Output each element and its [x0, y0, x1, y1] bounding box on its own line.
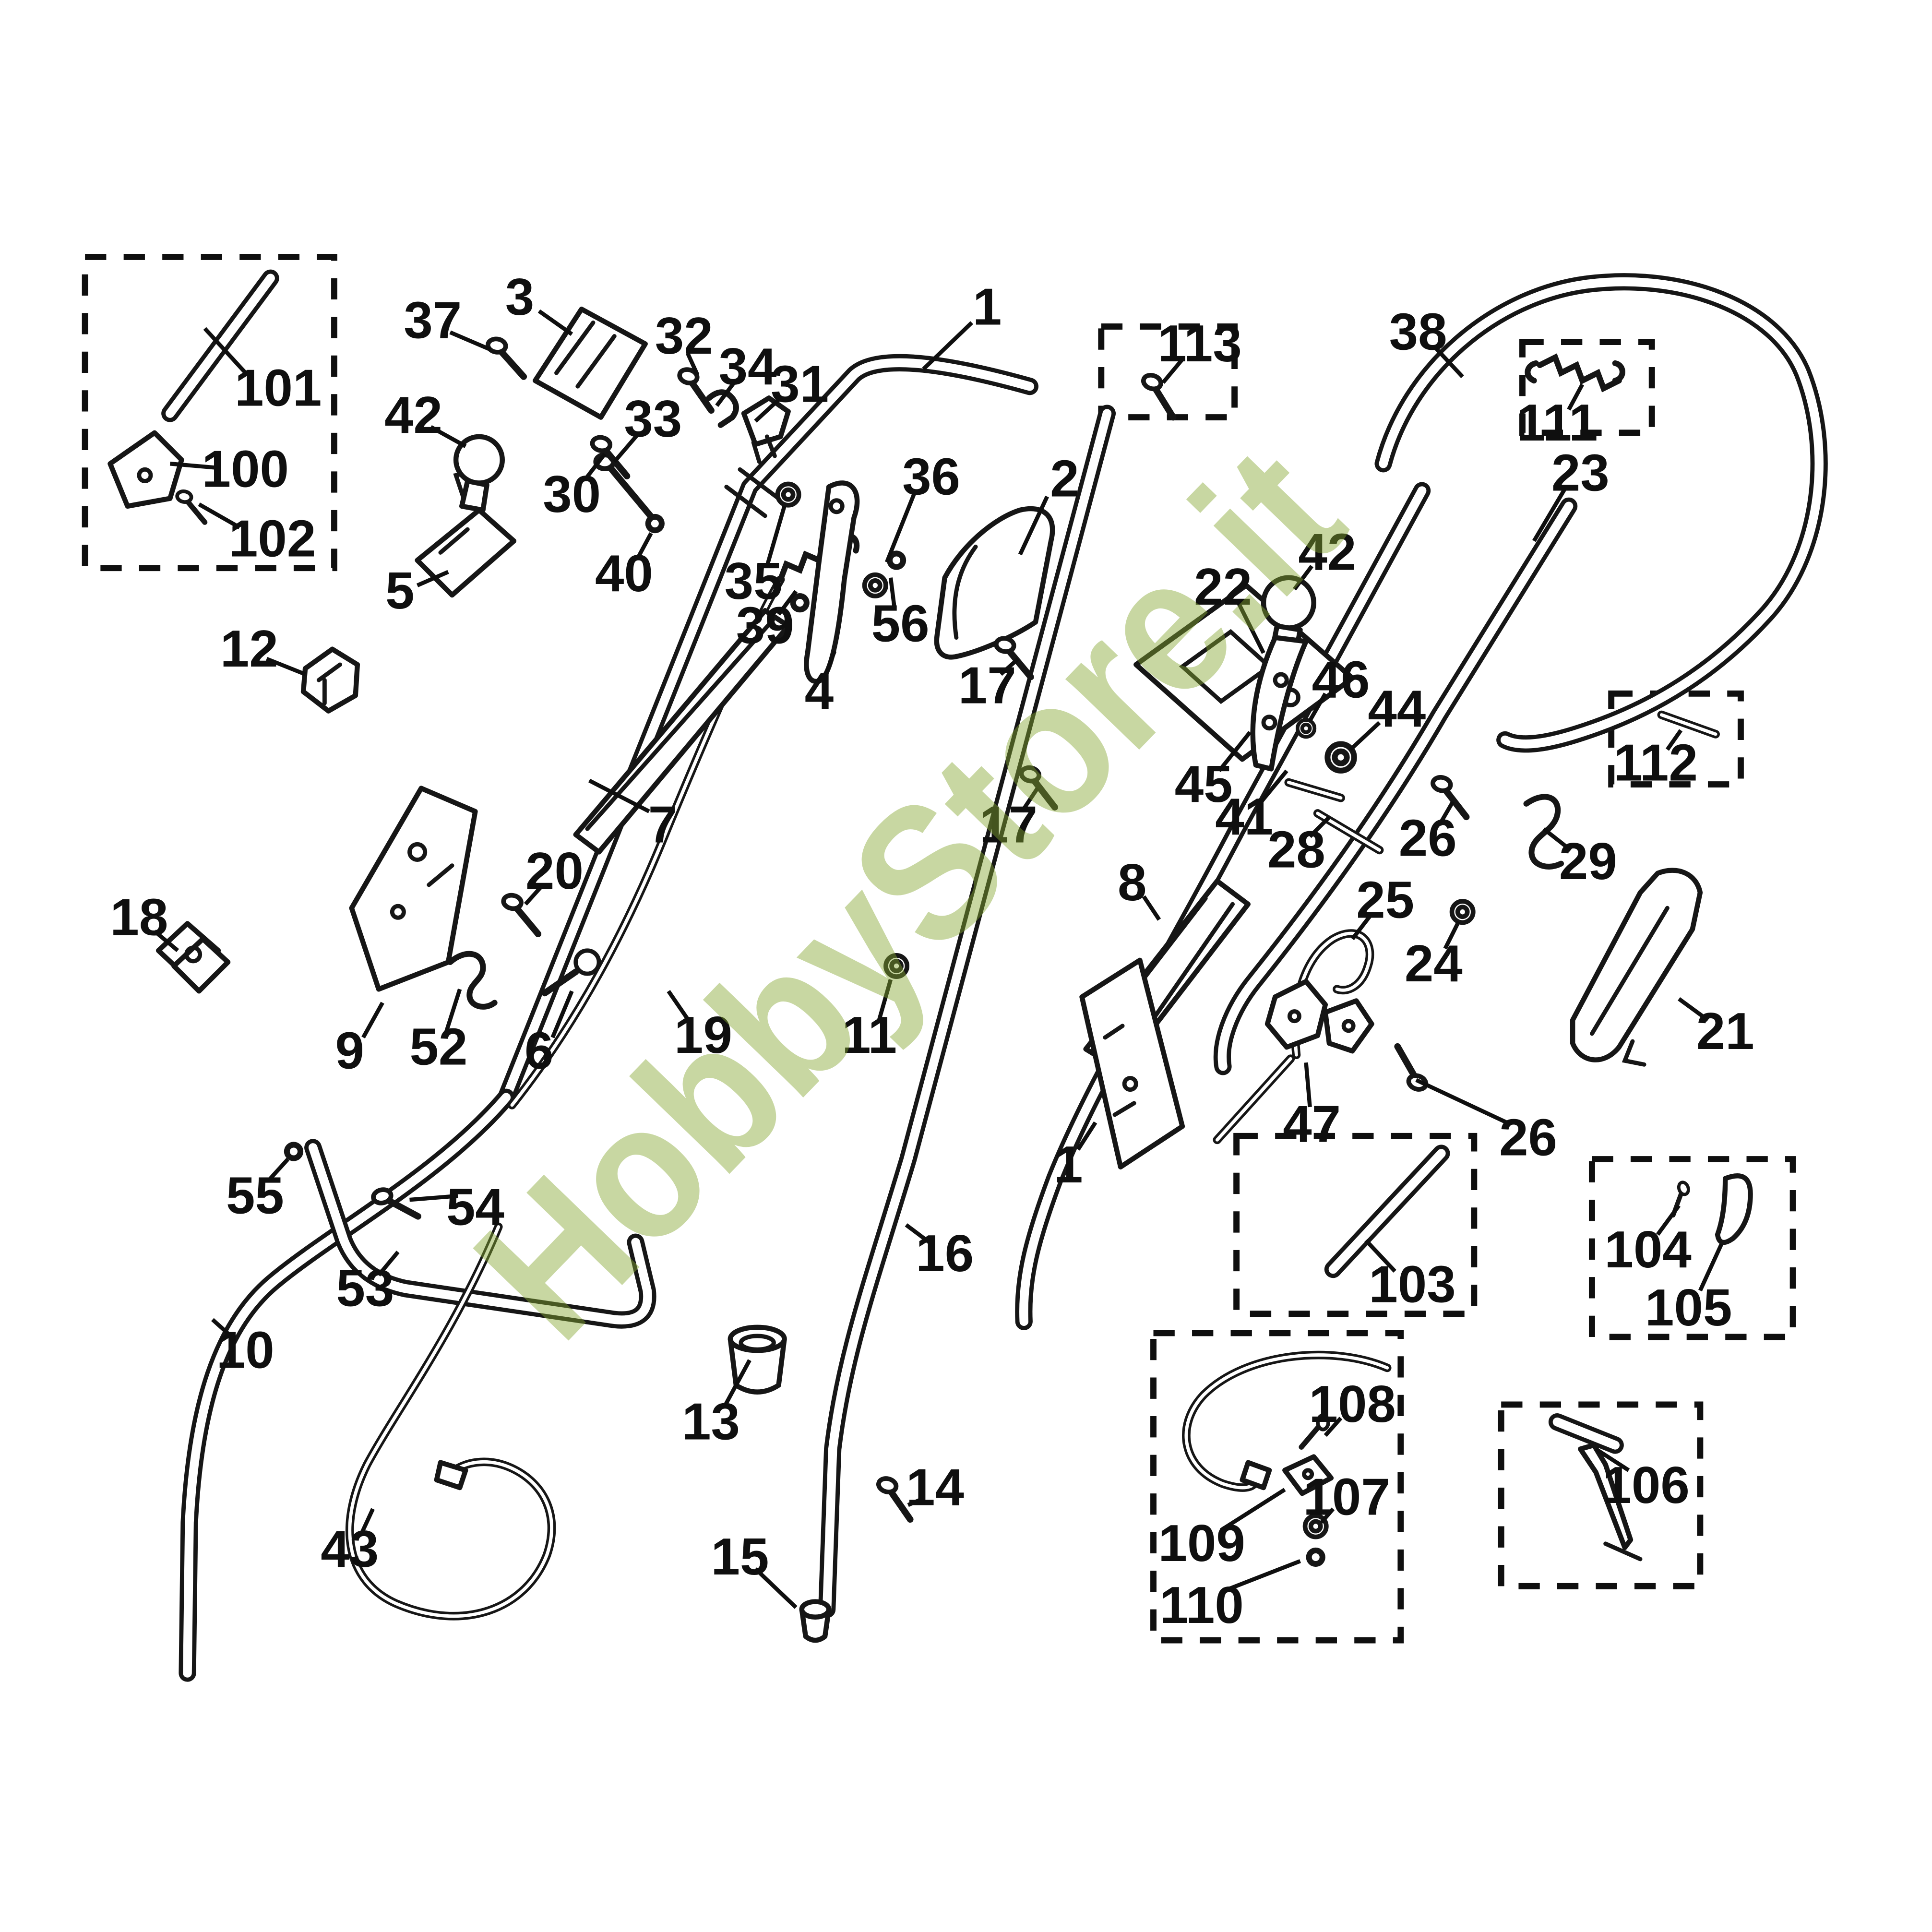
leader-line-9	[363, 1002, 382, 1037]
part-label-1: 1	[973, 278, 1002, 336]
part-label-38: 38	[1389, 303, 1447, 361]
part-label-25: 25	[1356, 871, 1414, 929]
knob-42-left-stem	[462, 481, 487, 510]
part-label-55: 55	[226, 1167, 284, 1225]
shoulder-bolt-33	[608, 465, 657, 524]
part-label-33: 33	[624, 390, 682, 448]
screw-37	[484, 338, 528, 377]
part-label-108: 108	[1309, 1375, 1396, 1433]
inset-spring-111	[1527, 358, 1622, 388]
part-label-20: 20	[525, 842, 584, 900]
nut-110	[1306, 1548, 1325, 1567]
part-label-106: 106	[1602, 1456, 1689, 1515]
washer-46	[1298, 720, 1314, 737]
washer-35	[777, 484, 799, 505]
part-label-42: 42	[384, 386, 442, 444]
part-label-40: 40	[595, 545, 653, 603]
nut-55	[284, 1142, 303, 1161]
part-label-9: 9	[335, 1022, 364, 1080]
part-label-23: 23	[1551, 444, 1610, 502]
part-label-111: 111	[1516, 394, 1598, 452]
part-label-47: 47	[1283, 1095, 1341, 1153]
handle-loop-tube	[1383, 282, 1819, 744]
inset-rod-103	[1333, 1154, 1441, 1270]
part-label-101: 101	[235, 359, 322, 417]
inset-hook-105	[1717, 1176, 1750, 1242]
part-label-8: 8	[1118, 854, 1146, 912]
part-label-2: 2	[1050, 450, 1079, 508]
brake-lever-4	[806, 483, 857, 681]
part-label-14: 14	[906, 1458, 964, 1516]
part-label-41: 41	[1215, 788, 1273, 846]
part-label-32: 32	[655, 307, 713, 365]
part-label-110: 110	[1160, 1576, 1244, 1634]
part-label-26: 26	[1399, 810, 1457, 868]
parts-diagram-page: 1011001023734232343133304051235394365621…	[0, 0, 1932, 1932]
part-label-30: 30	[543, 465, 601, 524]
part-label-5: 5	[385, 562, 414, 620]
part-label-24: 24	[1405, 935, 1463, 993]
part-label-112: 112	[1614, 734, 1698, 792]
part-label-107: 107	[1303, 1468, 1390, 1526]
part-label-43: 43	[321, 1520, 379, 1578]
part-label-37: 37	[404, 292, 462, 350]
screw-113	[1135, 373, 1184, 417]
part-label-113: 113	[1157, 315, 1241, 373]
part-label-105: 105	[1645, 1279, 1732, 1337]
inset-cable-ferrule	[1242, 1463, 1269, 1488]
part-label-15: 15	[711, 1528, 769, 1586]
cable-end-ferrule	[437, 1463, 465, 1488]
cable-clamp-47b	[1325, 1001, 1372, 1051]
screw-104	[1664, 1181, 1695, 1215]
part-label-21: 21	[1696, 1002, 1754, 1061]
cable-clip-12	[303, 649, 358, 711]
part-label-36: 36	[902, 448, 960, 506]
part-label-13: 13	[682, 1393, 740, 1451]
part-label-29: 29	[1559, 833, 1617, 891]
part-label-6: 6	[525, 1022, 553, 1080]
leader-line-3	[539, 311, 572, 334]
part-label-10: 10	[216, 1321, 274, 1379]
part-label-102: 102	[229, 510, 316, 568]
part-label-34: 34	[719, 338, 777, 396]
part-label-3: 3	[505, 268, 534, 326]
part-label-1: 1	[1054, 1136, 1083, 1194]
cap-15-top	[802, 1602, 829, 1617]
washer-36	[865, 575, 886, 596]
part-label-28: 28	[1267, 821, 1325, 879]
part-label-16: 16	[916, 1225, 974, 1283]
washer-24	[1452, 901, 1473, 922]
part-label-7: 7	[648, 796, 677, 854]
part-label-52: 52	[409, 1018, 467, 1076]
part-label-56: 56	[871, 595, 930, 653]
nut-40	[645, 514, 665, 533]
part-label-44: 44	[1368, 680, 1426, 738]
exploded-parts-diagram: 1011001023734232343133304051235394365621…	[0, 0, 1932, 1932]
ring-pin-6-ring	[576, 951, 599, 974]
part-label-46: 46	[1312, 651, 1370, 709]
lever-link-rod-41	[1288, 783, 1341, 798]
part-label-31: 31	[771, 355, 829, 413]
console-plate-5	[417, 510, 514, 595]
part-label-104: 104	[1605, 1221, 1692, 1279]
wire-hook-29	[1527, 797, 1561, 866]
part-label-100: 100	[202, 441, 289, 499]
leader-line-26	[1416, 1080, 1511, 1125]
part-label-53: 53	[336, 1260, 394, 1318]
part-label-26: 26	[1499, 1109, 1557, 1167]
part-label-4: 4	[805, 663, 834, 721]
cup-13-rim	[730, 1327, 785, 1350]
part-label-39: 39	[736, 597, 794, 655]
part-label-109: 109	[1158, 1515, 1245, 1573]
inset-pin-112	[1661, 715, 1716, 734]
part-label-12: 12	[220, 620, 278, 678]
part-label-18: 18	[110, 889, 168, 947]
part-label-103: 103	[1369, 1256, 1455, 1314]
